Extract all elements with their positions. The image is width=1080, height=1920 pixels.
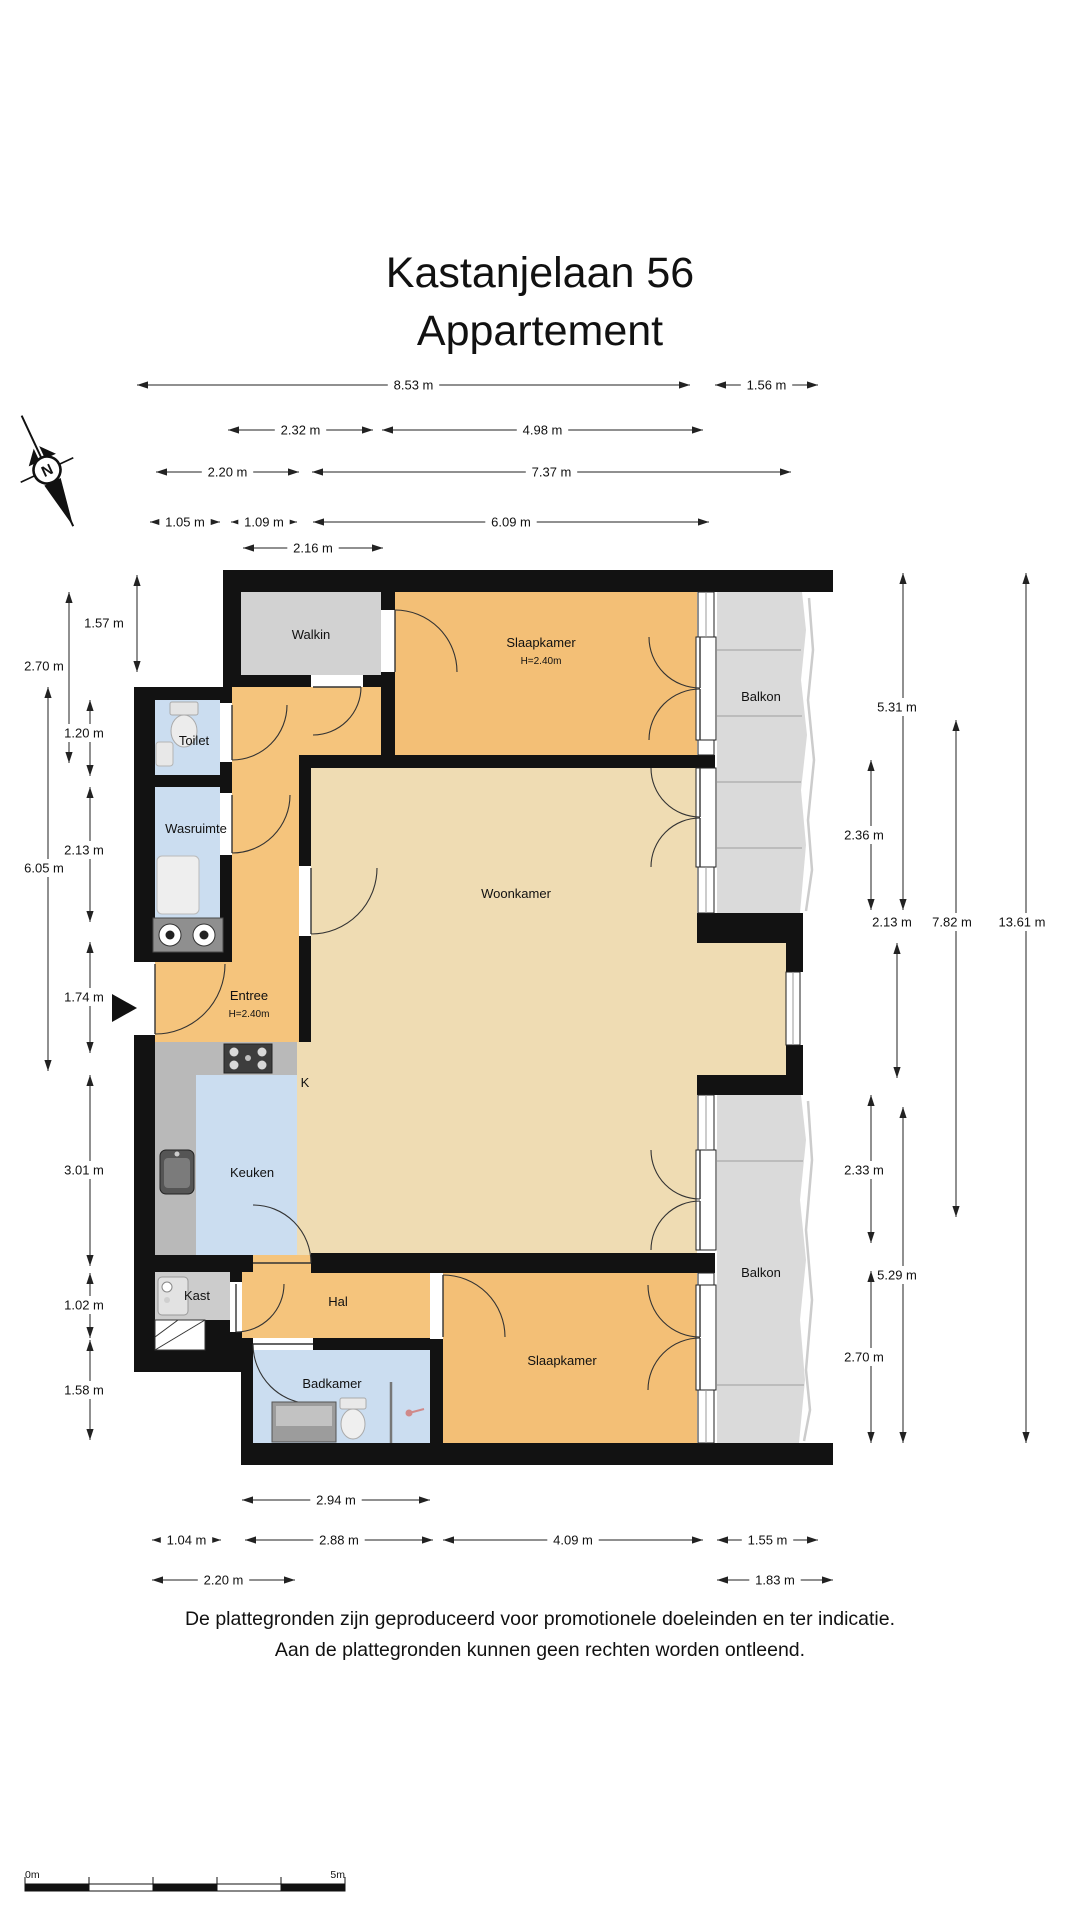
- page-subtitle: Appartement: [417, 307, 663, 355]
- dimension-horizontal: 2.20 m: [156, 463, 299, 481]
- dimension-label: 2.70 m: [24, 659, 64, 674]
- dimension-vertical: 1.57 m: [84, 575, 140, 672]
- room-woonkamer: [311, 768, 697, 1253]
- dimension-horizontal: 2.16 m: [243, 539, 383, 557]
- room-sublabel-entree: H=2.40m: [229, 1009, 270, 1020]
- dimension-label: 1.20 m: [64, 726, 104, 741]
- room-label-badkamer: Badkamer: [302, 1376, 362, 1391]
- dimension-label: 13.61 m: [999, 915, 1046, 930]
- room-entree: [155, 962, 299, 1042]
- kitchen-sink-icon: [160, 1150, 194, 1194]
- dimension-horizontal: 1.83 m: [717, 1571, 833, 1589]
- dimension-vertical: 1.74 m: [58, 942, 109, 1053]
- dimension-label: 1.09 m: [244, 515, 284, 530]
- room-label-entree: Entree: [230, 988, 268, 1003]
- dimension-horizontal: 1.05 m: [150, 513, 220, 531]
- dimension-vertical: 13.61 m: [993, 573, 1051, 1443]
- entrance-arrow-icon: [112, 994, 137, 1022]
- dimension-label: 3.01 m: [64, 1163, 104, 1178]
- floorplan-page: Kastanjelaan 56 Appartement N: [0, 0, 1080, 1920]
- toilet-sink-icon: [156, 742, 173, 766]
- dimension-vertical: 1.02 m: [58, 1273, 109, 1338]
- balcony-top-edge: [806, 598, 814, 911]
- dimension-label: 6.09 m: [491, 515, 531, 530]
- floorplan-canvas: Kastanjelaan 56 Appartement N: [0, 0, 1080, 1920]
- page-title: Kastanjelaan 56: [386, 249, 694, 297]
- dimension-label: 2.20 m: [208, 465, 248, 480]
- dimension-label: 1.57 m: [84, 616, 124, 631]
- room-sublabel-slaapkamer-top: H=2.40m: [521, 656, 562, 667]
- dimension-vertical: 2.33 m: [838, 1095, 889, 1243]
- balcony-top: [717, 592, 807, 913]
- dimension-label: 8.53 m: [394, 378, 434, 393]
- hob-icon: [224, 1044, 272, 1073]
- dimension-label: 2.88 m: [319, 1533, 359, 1548]
- dimension-label: 2.16 m: [293, 541, 333, 556]
- compass-icon: N: [0, 403, 99, 538]
- room-label-slaapkamer-bottom: Slaapkamer: [527, 1353, 597, 1368]
- dimension-horizontal: 7.37 m: [312, 463, 791, 481]
- dimension-label: 2.32 m: [281, 423, 321, 438]
- scale-bar: 0m 5m: [25, 1869, 345, 1891]
- woonkamer-nook: [697, 943, 786, 1075]
- dimension-label: 2.20 m: [204, 1573, 244, 1588]
- dimension-horizontal: 1.55 m: [717, 1531, 818, 1549]
- kitchen-passage: [297, 1042, 311, 1255]
- dimension-vertical: 7.82 m: [926, 720, 977, 1217]
- scale-end-label: 5m: [330, 1869, 345, 1881]
- room-slaapkamer-top: [395, 592, 697, 755]
- dimension-horizontal: 4.98 m: [382, 421, 703, 439]
- dimension-label: 2.13 m: [872, 915, 912, 930]
- toilet-tank-icon: [170, 702, 198, 715]
- bath-toilet-icon: [340, 1398, 366, 1439]
- room-label-hal: Hal: [328, 1294, 348, 1309]
- disclaimer-line-2: Aan de plattegronden kunnen geen rechten…: [275, 1639, 805, 1661]
- room-label-keuken: Keuken: [230, 1165, 274, 1180]
- dimension-label: 1.83 m: [755, 1573, 795, 1588]
- room-label-toilet: Toilet: [179, 733, 210, 748]
- dimension-vertical: 2.70 m: [838, 1271, 889, 1443]
- dimension-horizontal: 1.56 m: [715, 376, 818, 394]
- dimension-horizontal: 2.94 m: [242, 1491, 430, 1509]
- dimension-vertical: 1.20 m: [58, 700, 109, 776]
- dimension-vertical: 6.05 m: [18, 687, 69, 1071]
- dimension-horizontal: 2.88 m: [245, 1531, 433, 1549]
- dimension-horizontal: 4.09 m: [443, 1531, 703, 1549]
- shaft-hatch: [155, 1320, 205, 1350]
- room-label-walkin: Walkin: [292, 627, 331, 642]
- dimension-label: 1.58 m: [64, 1383, 104, 1398]
- dimension-label: 2.94 m: [316, 1493, 356, 1508]
- dimension-label: 2.13 m: [64, 843, 104, 858]
- dimension-vertical: 3.01 m: [58, 1075, 109, 1266]
- dimension-horizontal: 1.04 m: [152, 1531, 221, 1549]
- dimension-horizontal: 1.09 m: [231, 513, 297, 531]
- dimension-label: 2.36 m: [844, 828, 884, 843]
- dimension-label: 7.82 m: [932, 915, 972, 930]
- balcony-bottom-edge: [804, 1101, 812, 1441]
- room-label-keuken-k: K: [301, 1075, 310, 1090]
- dimension-label: 1.04 m: [167, 1533, 207, 1548]
- room-label-wasruimte: Wasruimte: [165, 821, 227, 836]
- dimension-vertical: 2.13 m: [58, 787, 109, 922]
- dimension-label: 1.02 m: [64, 1298, 104, 1313]
- room-label-balkon-bottom: Balkon: [741, 1265, 781, 1280]
- dimension-label: 1.55 m: [748, 1533, 788, 1548]
- room-label-kast: Kast: [184, 1288, 210, 1303]
- dimension-horizontal: 2.20 m: [152, 1571, 295, 1589]
- dimension-label: 4.98 m: [523, 423, 563, 438]
- dimension-vertical: 2.13 m: [872, 915, 912, 1079]
- room-label-balkon-top: Balkon: [741, 689, 781, 704]
- bath-vanity-icon: [272, 1402, 336, 1442]
- scale-start-label: 0m: [25, 1869, 40, 1881]
- dimension-label: 5.31 m: [877, 700, 917, 715]
- hall-corridor: [232, 755, 299, 962]
- dimension-vertical: 1.58 m: [58, 1340, 109, 1440]
- disclaimer-line-1: De plattegronden zijn geproduceerd voor …: [185, 1608, 895, 1630]
- room-label-slaapkamer-top: Slaapkamer: [506, 635, 576, 650]
- dimension-horizontal: 2.32 m: [228, 421, 373, 439]
- dimension-label: 2.33 m: [844, 1163, 884, 1178]
- dimension-label: 2.70 m: [844, 1350, 884, 1365]
- dimension-label: 1.74 m: [64, 990, 104, 1005]
- dimension-label: 7.37 m: [532, 465, 572, 480]
- hall-connector: [232, 687, 381, 755]
- dimension-label: 1.05 m: [165, 515, 205, 530]
- laundry-basin-icon: [157, 856, 199, 914]
- dimension-vertical: 2.36 m: [838, 760, 889, 910]
- dimension-label: 5.29 m: [877, 1268, 917, 1283]
- room-label-woonkamer: Woonkamer: [481, 886, 552, 901]
- dimension-horizontal: 8.53 m: [137, 376, 690, 394]
- dimension-label: 6.05 m: [24, 861, 64, 876]
- dimension-vertical: 5.31 m: [871, 573, 922, 910]
- dimension-horizontal: 6.09 m: [313, 513, 709, 531]
- dimension-label: 1.56 m: [747, 378, 787, 393]
- dimension-label: 4.09 m: [553, 1533, 593, 1548]
- dimension-vertical: 5.29 m: [871, 1107, 922, 1443]
